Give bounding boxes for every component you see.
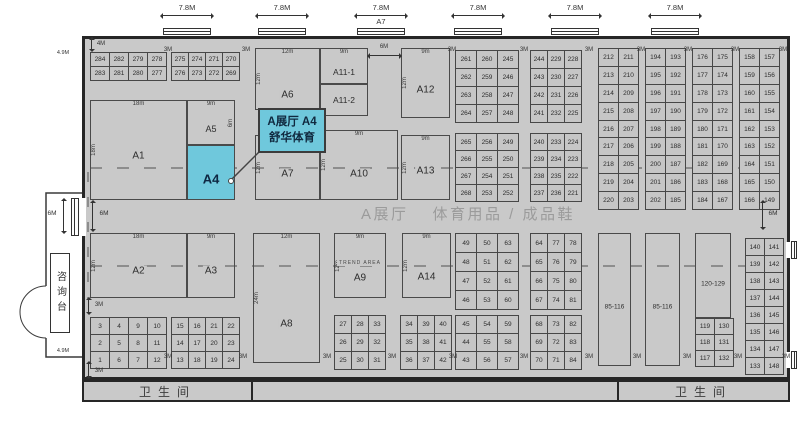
entrance-door-mark [454,28,502,35]
booth-264: 264 [456,105,476,122]
booth-173: 173 [713,85,732,102]
bottom-service-bar: 卫生间 卫生间 [82,380,790,402]
booth-150: 150 [760,174,779,191]
booth-257: 257 [477,105,497,122]
booth-75: 75 [548,272,564,290]
booth-60: 60 [498,291,518,309]
booth-72: 72 [548,334,564,351]
booth-170: 170 [713,138,732,155]
booth-186: 186 [666,174,685,191]
booth-183: 183 [693,174,712,191]
booth-226: 226 [565,87,581,104]
booth-61: 61 [498,272,518,290]
booth-215: 215 [599,103,618,120]
dim-3M: 3M [731,47,739,53]
booth-232: 232 [548,105,564,122]
entrance-door-arc-bottom [20,312,46,338]
dim-arrow [63,199,64,233]
zone-width-dim: 18m [133,234,145,240]
zone-a9: 9m12mTREND AREAA9 [334,233,386,298]
booth-37: 37 [418,352,434,369]
booth-130: 130 [715,319,733,334]
booth-169: 169 [713,156,732,173]
booth-160: 160 [740,85,759,102]
booth-67: 67 [531,291,547,309]
booth-13: 13 [172,352,188,368]
dim-3M: 3M [683,354,691,360]
booth-2: 2 [91,335,109,351]
booth-238: 238 [531,168,547,184]
booth-208: 208 [619,103,638,120]
booth-225: 225 [565,105,581,122]
booth-268: 268 [456,185,476,201]
zone-a10: 9m12mA10 [320,130,398,200]
booth-40: 40 [435,316,451,333]
booth-243: 243 [531,69,547,86]
booth-207: 207 [619,121,638,138]
booth-grid: 349102581116712 [90,317,167,369]
zone-label: A7 [279,168,295,179]
booth-9: 9 [129,318,147,334]
booth-29: 29 [352,334,368,351]
zone-width-dim: 9m [355,131,363,137]
booth-164: 164 [740,156,759,173]
dim-6M: 6M [47,210,56,217]
booth-81: 81 [565,291,581,309]
booth-251: 251 [498,168,518,184]
booth-117: 117 [696,351,714,366]
booth-274: 274 [189,53,205,66]
booth-23: 23 [223,335,239,351]
booth-80: 80 [565,272,581,290]
entrance-door-mark [163,28,211,35]
zone-width-dim: 9m [207,234,215,240]
booth-276: 276 [172,67,188,80]
zone-a14: 9m12mA14 [402,233,451,298]
entrance-door-mark [551,28,599,35]
booth-139: 139 [746,256,764,272]
booth-190: 190 [666,103,685,120]
booth-203: 203 [619,192,638,209]
zone-width-dim: 12m [281,234,293,240]
booth-58: 58 [498,334,518,351]
booth-41: 41 [435,334,451,351]
booth-grid: 240233224239234223238235222237236221 [530,133,582,202]
booth-224: 224 [565,134,581,150]
booth-45: 45 [456,316,476,333]
dim-4.9M: 4.9M [57,348,69,354]
booth-34: 34 [401,316,417,333]
door-width-label: 7.8M [667,3,684,12]
zone-label: A13 [415,166,437,177]
zone-height-dim: 12m [256,162,262,174]
booth-202: 202 [646,192,665,209]
booth-283: 283 [91,67,109,80]
zone-a6: 12m12mA6 [255,48,320,110]
booth-43: 43 [456,352,476,369]
booth-135: 135 [746,324,764,340]
booth-76: 76 [548,253,564,271]
door-width-arrow [256,15,308,16]
dim-6M: 6M [768,210,777,217]
booth-grid: 2122112132102142092152082162072172062182… [598,48,639,210]
floor-plan: A展厅 体育用品 / 成品鞋 卫生间 卫生间 咨询台 A展厅 A4 舒华体育 1… [0,0,800,426]
door-width-label: 7.8M [179,3,196,12]
zone-width-dim: 9m [421,136,429,142]
zone-label: A11-1 [331,67,357,77]
booth-242: 242 [531,87,547,104]
booth-262: 262 [456,69,476,86]
booth-69: 69 [531,334,547,351]
booth-168: 168 [713,174,732,191]
booth-151: 151 [760,156,779,173]
dim-3M: 3M [164,47,172,53]
callout-exhibitor: 舒华体育 [269,131,315,147]
zone-a11-2: A11-2 [320,84,368,116]
restroom-left: 卫生间 [84,382,251,400]
booth-157: 157 [760,49,779,66]
booth-144: 144 [765,290,783,306]
booth-callout: A展厅 A4 舒华体育 [258,108,326,153]
booth-8: 8 [129,335,147,351]
booth-231: 231 [548,87,564,104]
booth-204: 204 [619,174,638,191]
booth-180: 180 [693,121,712,138]
booth-57: 57 [498,352,518,369]
booth-244: 244 [531,51,547,68]
booth-217: 217 [599,138,618,155]
booth-63: 63 [498,234,518,252]
dim-3M: 3M [388,354,396,360]
booth-grid: 1401411391421381431371441361451351461341… [745,238,784,375]
booth-77: 77 [548,234,564,252]
zone-a13: 9m12mA13 [401,135,450,200]
booth-73: 73 [548,316,564,333]
booth-239: 239 [531,151,547,167]
booth-223: 223 [565,151,581,167]
booth-56: 56 [477,352,497,369]
entrance-door-mark [651,28,699,35]
booth-18: 18 [189,352,205,368]
booth-221: 221 [565,185,581,201]
zone-label: 120-129 [699,280,727,287]
door-width-label: 7.8M [274,3,291,12]
dim-6M: 6M [99,210,108,217]
booth-27: 27 [335,316,351,333]
booth-254: 254 [477,168,497,184]
booth-118: 118 [696,335,714,350]
booth-248: 248 [498,105,518,122]
zone-label: A10 [348,168,370,179]
booth-grid: 647778657679667580677481 [530,233,582,310]
booth-1: 1 [91,352,109,368]
hall-title: A展厅 体育用品 / 成品鞋 [318,203,618,224]
booth-192: 192 [666,67,685,84]
booth-74: 74 [548,291,564,309]
zone-a11-1: 9mA11-1 [320,48,368,84]
booth-152: 152 [760,138,779,155]
booth-11: 11 [148,335,166,351]
dim-3M: 3M [95,302,103,308]
booth-25: 25 [335,352,351,369]
booth-177: 177 [693,67,712,84]
service-bar-middle [251,382,617,400]
booth-241: 241 [531,105,547,122]
booth-148: 148 [765,358,783,374]
booth-156: 156 [760,67,779,84]
booth-237: 237 [531,185,547,201]
booth-259: 259 [477,69,497,86]
entrance-door-mark [357,28,405,35]
dim-6M: 6M [380,44,388,50]
zone-width-dim: 9m [356,234,364,240]
booth-261: 261 [456,51,476,68]
booth-grid: 1761751771741781731791721801711811701821… [692,48,733,210]
zone-label: A8 [278,318,294,329]
booth-281: 281 [110,67,128,80]
dim-3M: 3M [520,47,528,53]
booth-68: 68 [531,316,547,333]
booth-142: 142 [765,256,783,272]
booth-230: 230 [548,69,564,86]
left-door-mark [71,198,79,236]
booth-161: 161 [740,103,759,120]
dim-3M: 3M [164,354,172,360]
booth-272: 272 [206,67,222,80]
zone-height-dim: 18m [91,144,97,156]
booth-79: 79 [565,253,581,271]
zone-label: A12 [415,84,437,95]
booth-84: 84 [565,352,581,369]
dim-3M: 3M [449,354,457,360]
booth-30: 30 [352,352,368,369]
zone-label: A4 [201,171,222,186]
booth-193: 193 [666,49,685,66]
hall-title-category: 体育用品 / 成品鞋 [433,203,576,224]
booth-214: 214 [599,85,618,102]
booth-140: 140 [746,239,764,255]
booth-31: 31 [369,352,385,369]
booth-234: 234 [548,151,564,167]
right-door-mark-bottom [791,351,797,369]
dim-3M: 3M [520,354,528,360]
booth-51: 51 [477,253,497,271]
booth-54: 54 [477,316,497,333]
zone-label: A5 [203,124,218,134]
zone-a1: 18m18mA1 [90,100,187,200]
door-width-arrow [355,15,407,16]
booth-70: 70 [531,352,547,369]
zone-a5: 9m6mA5 [187,100,235,145]
booth-235: 235 [548,168,564,184]
booth-154: 154 [760,103,779,120]
booth-284: 284 [91,53,109,66]
door-width-label: 7.8M [567,3,584,12]
booth-184: 184 [693,192,712,209]
booth-155: 155 [760,85,779,102]
booth-253: 253 [477,185,497,201]
booth-191: 191 [666,85,685,102]
booth-277: 277 [148,67,166,80]
dim-3M: 3M [637,47,645,53]
booth-147: 147 [765,341,783,357]
booth-grid: 343940353841363742 [400,315,452,370]
door-width-arrow [452,15,504,16]
booth-35: 35 [401,334,417,351]
booth-46: 46 [456,291,476,309]
dim-arrow [88,362,89,378]
booth-grid: 119130118131117132 [695,318,734,367]
booth-228: 228 [565,51,581,68]
zone-height-dim: 12m [402,162,408,174]
door-width-arrow [161,15,213,16]
booth-273: 273 [189,67,205,80]
zone-label: A1 [130,150,146,161]
door-width-label: 7.8M [373,3,390,12]
booth-65: 65 [531,253,547,271]
booth-255: 255 [477,151,497,167]
booth-159: 159 [740,67,759,84]
booth-59: 59 [498,316,518,333]
booth-189: 189 [666,121,685,138]
booth-5: 5 [110,335,128,351]
booth-229: 229 [548,51,564,68]
booth-24: 24 [223,352,239,368]
zone-label: A2 [130,265,146,276]
info-desk-label: 咨询台 [53,271,68,316]
door-width-arrow [549,15,601,16]
dim-3M: 3M [684,47,692,53]
booth-201: 201 [646,174,665,191]
dim-3M: 3M [734,354,742,360]
zone-b85-116-b: 85-116 [645,233,680,366]
booth-195: 195 [646,67,665,84]
dim-arrow [88,298,89,314]
booth-158: 158 [740,49,759,66]
dim-arrow [91,38,92,51]
booth-196: 196 [646,85,665,102]
dim-4.9M: 4.9M [57,50,69,56]
booth-44: 44 [456,334,476,351]
booth-20: 20 [206,335,222,351]
zone-b120-129: 120-129 [695,233,731,318]
booth-grid: 1941931951921961911971901981891991882001… [645,48,686,210]
zone-width-dim: 9m [207,101,215,107]
booth-133: 133 [746,358,764,374]
booth-19: 19 [206,352,222,368]
booth-grid: 275274271270276273272269 [171,52,240,81]
booth-62: 62 [498,253,518,271]
booth-199: 199 [646,138,665,155]
booth-16: 16 [189,318,205,334]
booth-205: 205 [619,156,638,173]
dim-4M: 4M [97,41,105,47]
restroom-left-label: 卫生间 [139,383,196,400]
zone-a4: A4 [187,145,235,200]
booth-163: 163 [740,138,759,155]
booth-278: 278 [148,53,166,66]
booth-240: 240 [531,134,547,150]
booth-grid: 244229228243230227242231226241232225 [530,50,582,123]
booth-143: 143 [765,273,783,289]
booth-136: 136 [746,307,764,323]
booth-266: 266 [456,151,476,167]
booth-71: 71 [548,352,564,369]
zone-b85-116-a: 85-116 [598,233,631,366]
booth-grid: 261260245262259246263258247264257248 [455,50,519,123]
booth-7: 7 [129,352,147,368]
zone-a3: 9mA3 [187,233,235,298]
zone-label: 85-116 [603,304,627,311]
dim-3M: 3M [95,368,103,374]
booth-222: 222 [565,168,581,184]
booth-48: 48 [456,253,476,271]
dim-arrow [762,201,763,229]
booth-grid: 687382697283707184 [530,315,582,370]
booth-145: 145 [765,307,783,323]
booth-21: 21 [206,318,222,334]
dim-3M: 3M [633,354,641,360]
booth-249: 249 [498,134,518,150]
booth-134: 134 [746,341,764,357]
booth-279: 279 [129,53,147,66]
zone-width-dim: 9m [340,49,348,55]
booth-219: 219 [599,174,618,191]
zone-label: A6 [279,90,295,101]
booth-185: 185 [666,192,685,209]
booth-198: 198 [646,121,665,138]
booth-212: 212 [599,49,618,66]
right-door-mark-top [791,241,797,259]
booth-218: 218 [599,156,618,173]
booth-171: 171 [713,121,732,138]
booth-275: 275 [172,53,188,66]
dim-3M: 3M [782,354,790,360]
door-width-arrow [649,15,701,16]
booth-188: 188 [666,138,685,155]
booth-83: 83 [565,334,581,351]
booth-252: 252 [498,185,518,201]
booth-119: 119 [696,319,714,334]
booth-167: 167 [713,192,732,209]
zone-height-dim: 12m [402,77,408,89]
booth-182: 182 [693,156,712,173]
booth-39: 39 [418,316,434,333]
zone-subtitle: TREND AREA [337,260,383,266]
zone-label: A9 [352,273,368,284]
booth-17: 17 [189,335,205,351]
booth-grid: 272833262932253031 [334,315,386,370]
booth-grid: 284282279278283281280277 [90,52,167,81]
booth-176: 176 [693,49,712,66]
booth-197: 197 [646,103,665,120]
booth-227: 227 [565,69,581,86]
entrance-door-mark [258,28,306,35]
booth-49: 49 [456,234,476,252]
booth-282: 282 [110,53,128,66]
zone-width-dim: 12m [282,49,294,55]
booth-grid: 495063485162475261465360 [455,233,519,310]
booth-174: 174 [713,67,732,84]
zone-width-dim: 9m [422,234,430,240]
booth-265: 265 [456,134,476,150]
booth-246: 246 [498,69,518,86]
callout-hall-booth: A展厅 A4 [267,115,316,131]
dim-3M: 3M [323,354,331,360]
booth-211: 211 [619,49,638,66]
booth-216: 216 [599,121,618,138]
booth-162: 162 [740,121,759,138]
